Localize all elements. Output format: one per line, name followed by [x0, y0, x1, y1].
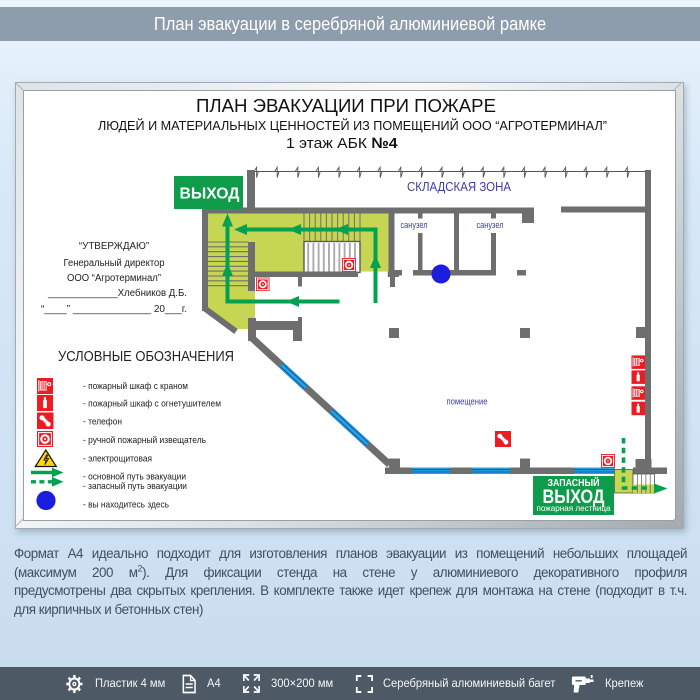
svg-text:санузел: санузел	[401, 220, 428, 230]
svg-text:1 этаж АБК №4: 1 этаж АБК №4	[286, 135, 398, 152]
svg-text:- электрощитовая: - электрощитовая	[83, 454, 152, 465]
svg-text:пожарная лестница: пожарная лестница	[537, 504, 612, 513]
svg-text:- телефон: - телефон	[83, 417, 122, 428]
svg-text:- запасный путь эвакуации: - запасный путь эвакуации	[83, 481, 187, 492]
svg-text:ООО “Агротерминал”: ООО “Агротерминал”	[67, 273, 161, 284]
svg-text:“____” ______________ 20___г.: “____” ______________ 20___г.	[41, 304, 187, 315]
svg-text:- вы находитесь здесь: - вы находитесь здесь	[83, 500, 169, 511]
svg-text:УСЛОВНЫЕ ОБОЗНАЧЕНИЯ: УСЛОВНЫЕ ОБОЗНАЧЕНИЯ	[58, 348, 234, 365]
svg-text:- пожарный шкаф с огнетушителе: - пожарный шкаф с огнетушителем	[83, 399, 221, 410]
svg-text:ПЛАН ЭВАКУАЦИИ ПРИ ПОЖАРЕ: ПЛАН ЭВАКУАЦИИ ПРИ ПОЖАРЕ	[196, 95, 496, 116]
svg-text:санузел: санузел	[477, 220, 504, 230]
svg-text:Генеральный директор: Генеральный директор	[64, 258, 166, 269]
svg-text:- ручной пожарный извещатель: - ручной пожарный извещатель	[83, 435, 206, 446]
svg-text:ЛЮДЕЙ И МАТЕРИАЛЬНЫХ ЦЕННОСТЕЙ: ЛЮДЕЙ И МАТЕРИАЛЬНЫХ ЦЕННОСТЕЙ ИЗ ПОМЕЩЕ…	[98, 118, 607, 133]
svg-text:_____________Хлебников Д.Б.: _____________Хлебников Д.Б.	[47, 288, 187, 299]
svg-text:СКЛАДСКАЯ ЗОНА: СКЛАДСКАЯ ЗОНА	[407, 180, 512, 194]
svg-text:- пожарный шкаф с краном: - пожарный шкаф с краном	[83, 381, 188, 392]
svg-text:помещение: помещение	[447, 397, 488, 407]
svg-text:ВЫХОД: ВЫХОД	[180, 186, 241, 203]
svg-text:“УТВЕРЖДАЮ”: “УТВЕРЖДАЮ”	[79, 241, 149, 252]
